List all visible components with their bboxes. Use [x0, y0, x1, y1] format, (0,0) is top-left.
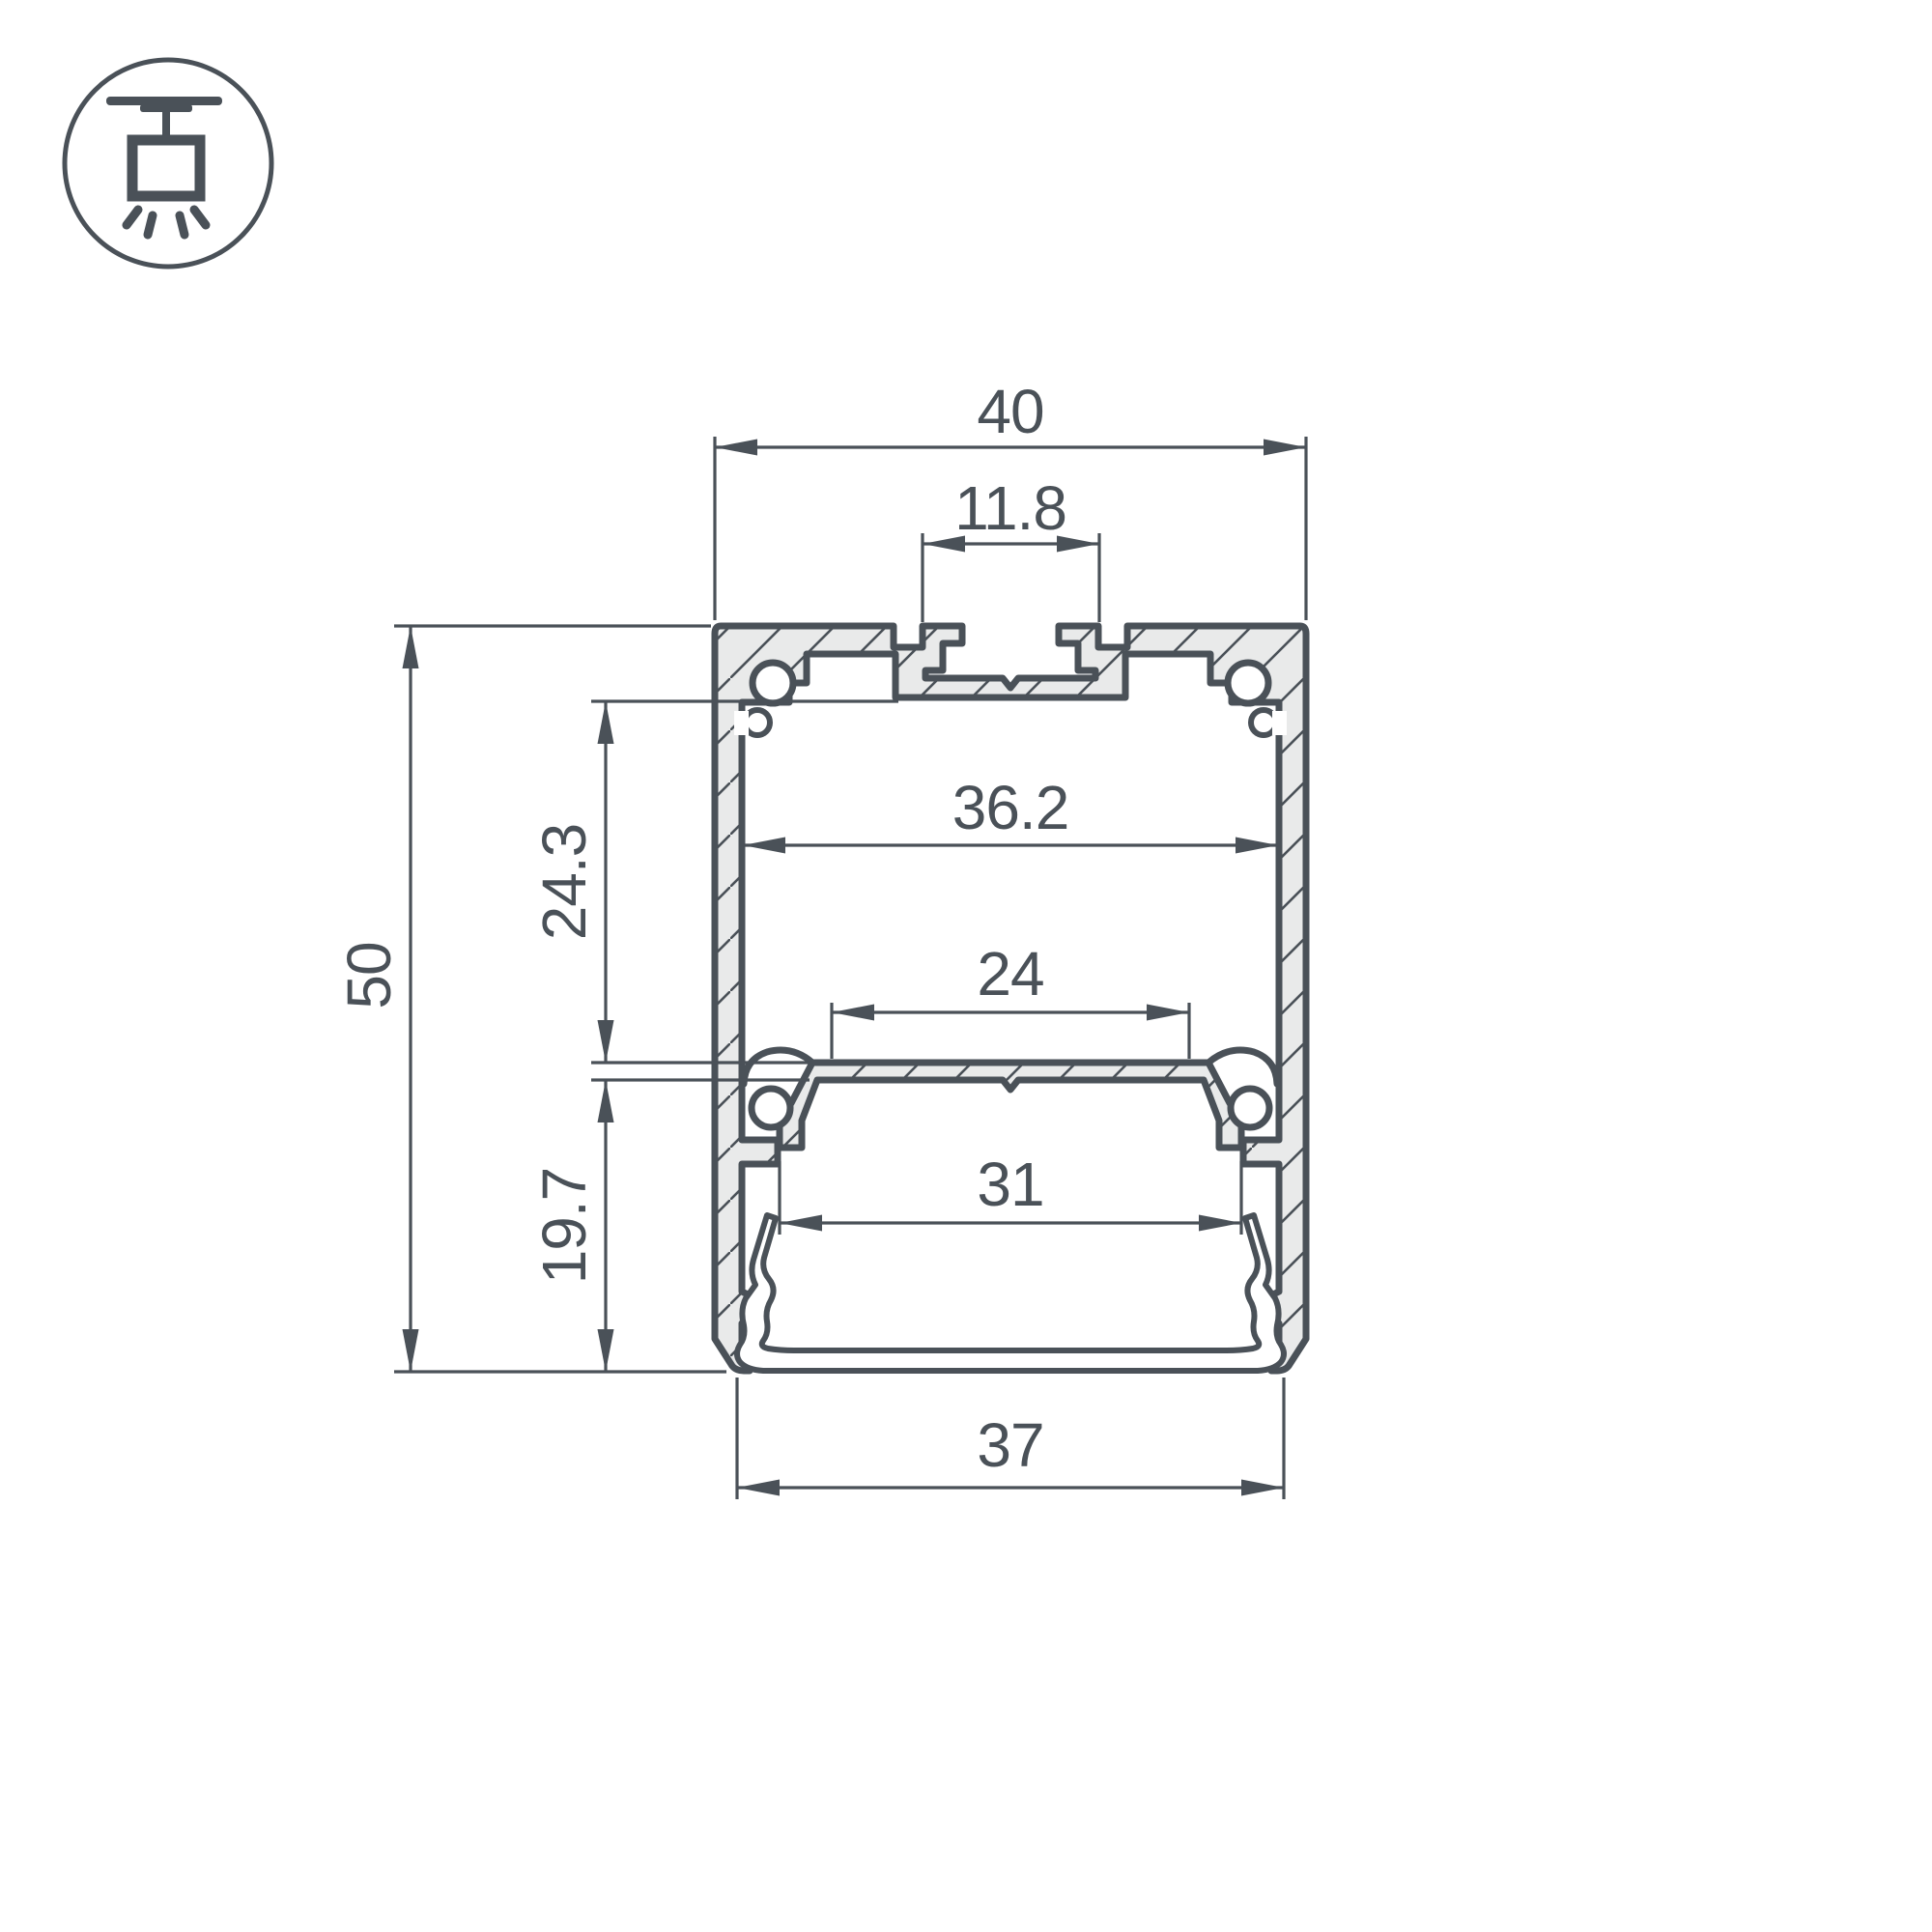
- dim-label-mount-slot-width: 11.8: [954, 473, 1066, 543]
- dim-label-bottom-width: 37: [977, 1410, 1043, 1480]
- icon-ceiling-bar: [106, 97, 222, 105]
- dim-label-inner-width: 36.2: [952, 773, 1069, 842]
- screw-ports: [734, 710, 1287, 735]
- dim-label-plate-window-width: 24: [977, 939, 1043, 1009]
- led-mounting-plate: [780, 1063, 1241, 1148]
- screw-boss-top-left: [753, 663, 793, 703]
- drawing-page: 40 11.8 36.2 24 31 37 50 24.3 19.7: [0, 0, 1932, 1932]
- screw-bosses: [752, 663, 1269, 1127]
- dim-label-lower-chamber-width: 31: [977, 1150, 1043, 1219]
- dimension-annotations: [394, 437, 1306, 1499]
- dimension-lines: [411, 447, 1306, 1488]
- dim-label-upper-chamber-height: 24.3: [529, 824, 599, 941]
- dim-label-lower-chamber-height: 19.7: [529, 1168, 599, 1285]
- dim-label-outer-width: 40: [977, 377, 1043, 446]
- extension-lines: [394, 437, 1306, 1499]
- screw-boss-top-right: [1228, 663, 1268, 703]
- diffuser-cover: [737, 1215, 1284, 1371]
- dimension-labels: 40 11.8 36.2 24 31 37 50 24.3 19.7: [334, 377, 1068, 1480]
- screw-boss-mid-right: [1231, 1089, 1269, 1127]
- screw-boss-mid-left: [752, 1089, 790, 1127]
- suspended-pendant-light-icon: [65, 60, 271, 267]
- icon-lamp-box: [132, 140, 200, 196]
- icon-light-rays: [127, 210, 206, 235]
- dimension-arrowheads: [403, 440, 1307, 1496]
- dim-label-overall-height: 50: [334, 942, 404, 1009]
- technical-drawing: 40 11.8 36.2 24 31 37 50 24.3 19.7: [0, 0, 1932, 1932]
